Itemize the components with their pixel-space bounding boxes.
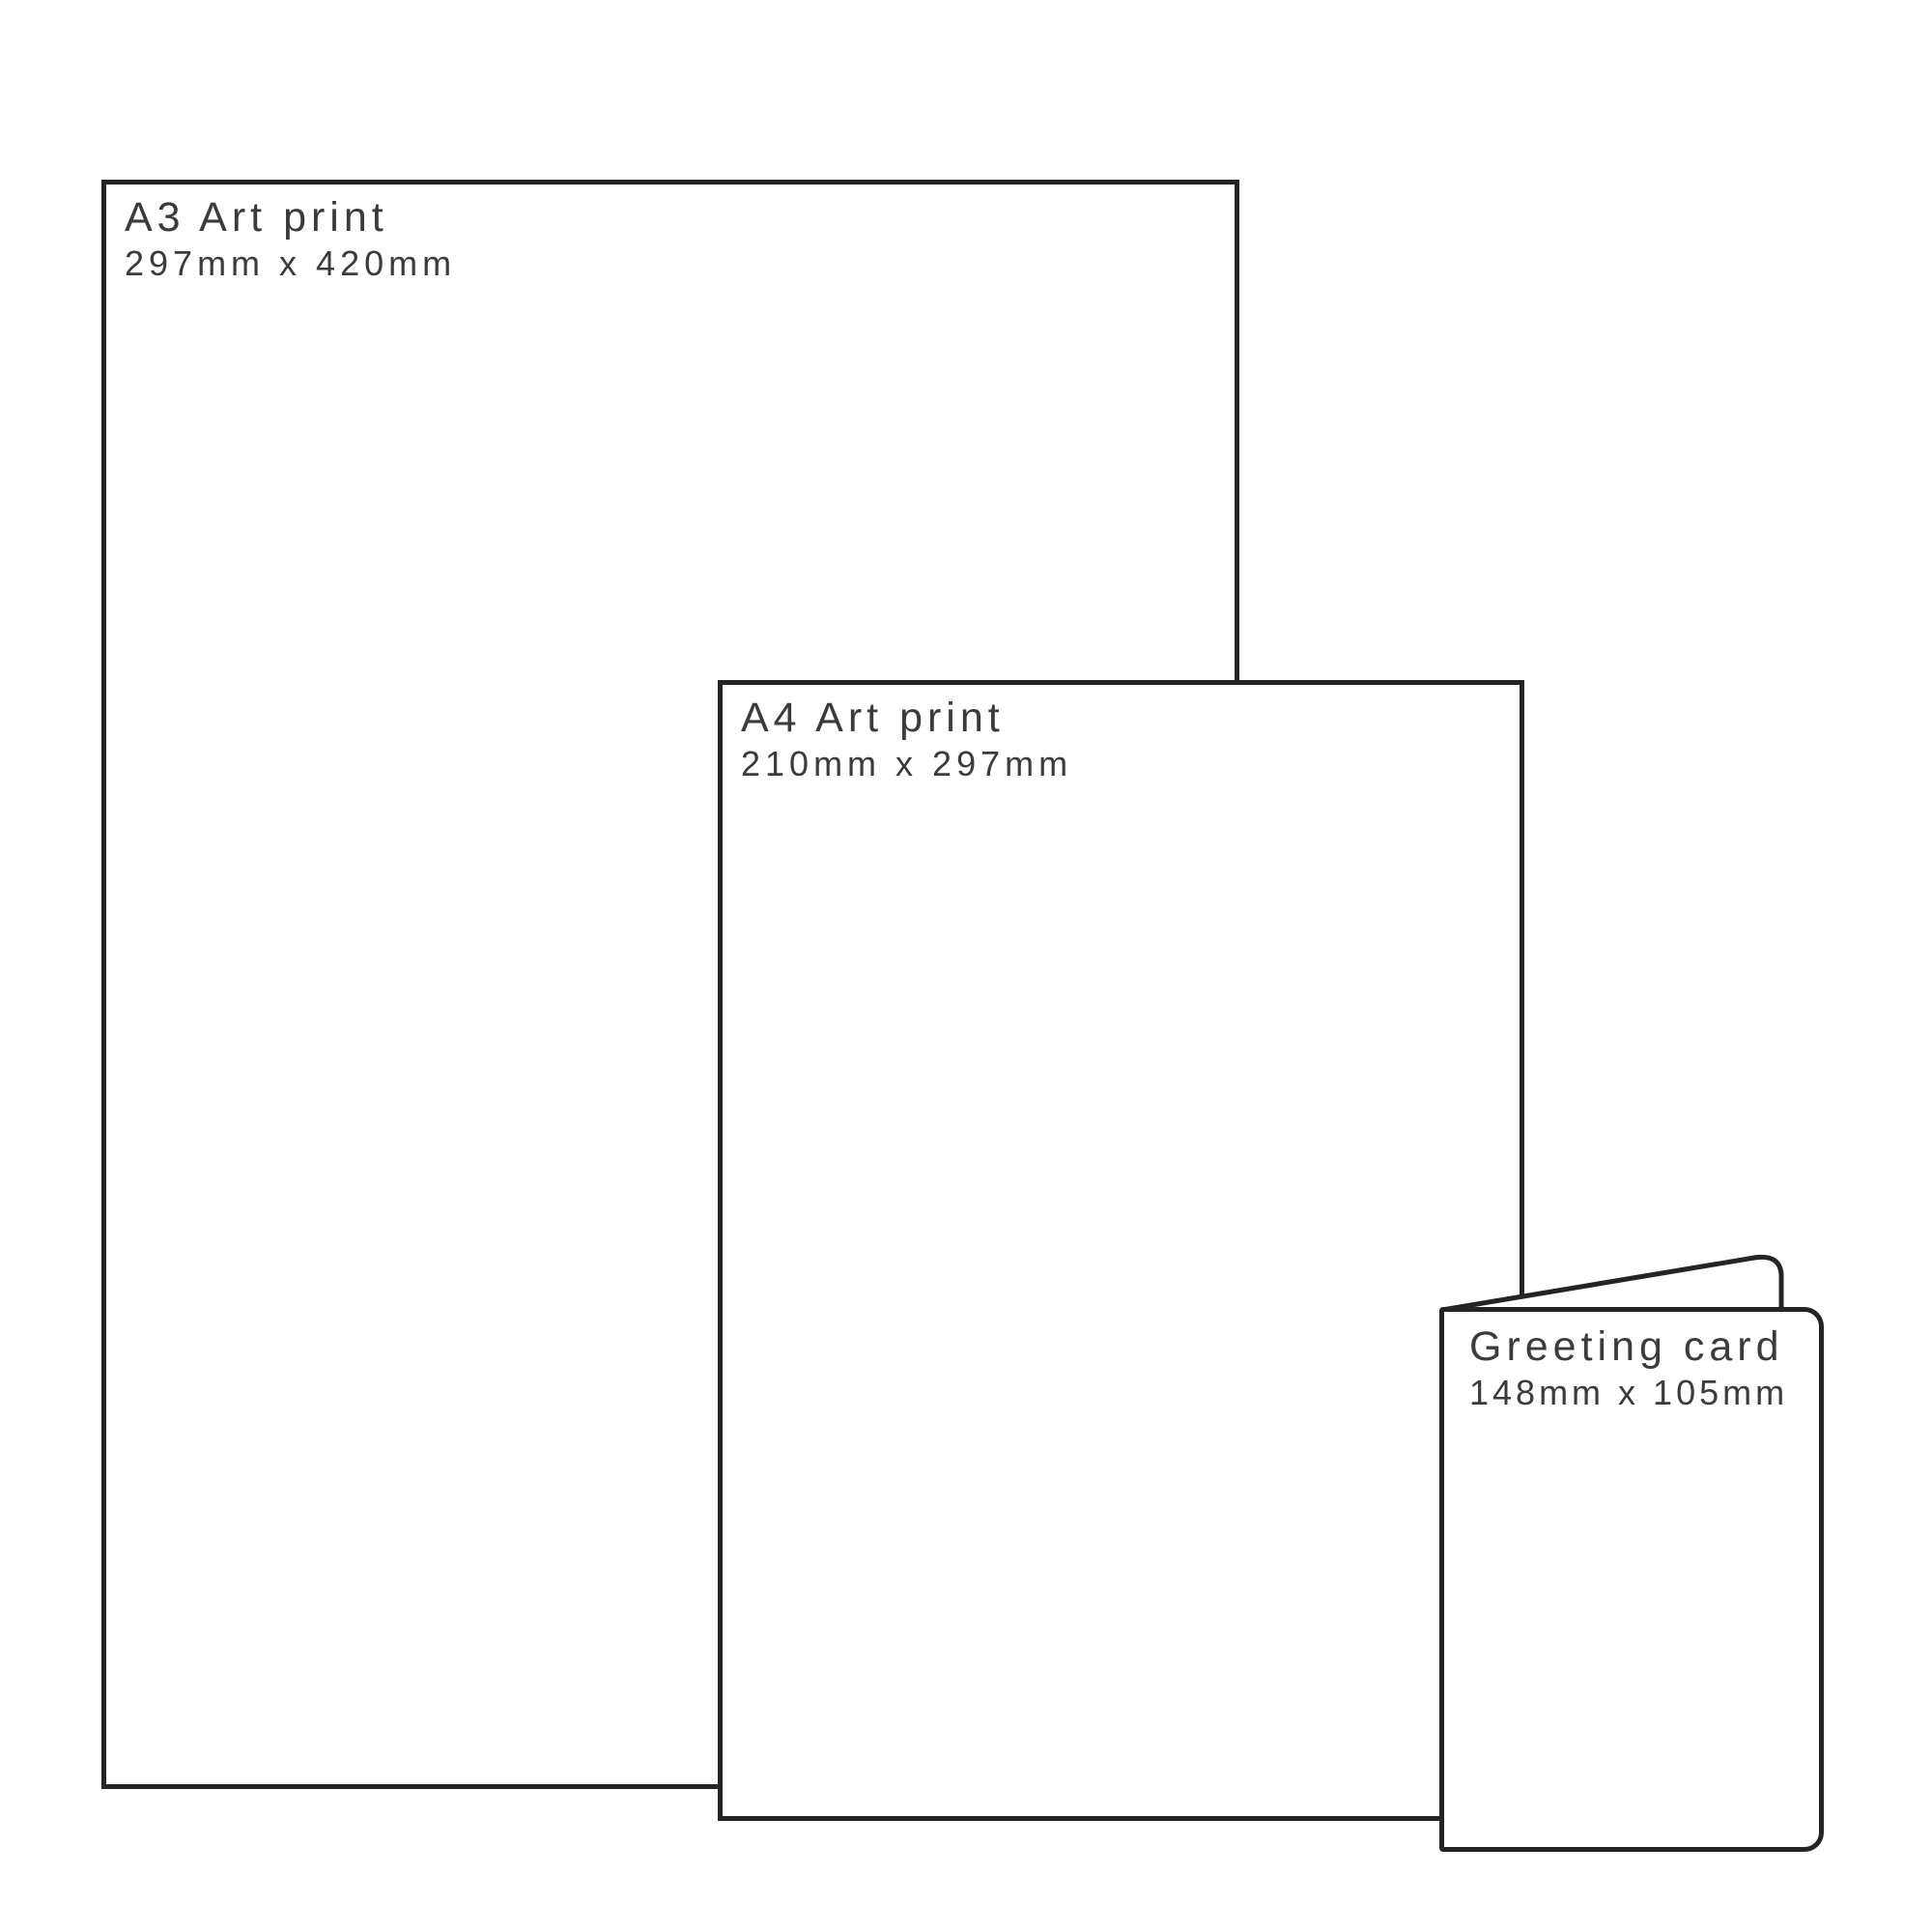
a4-print-outline: A4 Art print 210mm x 297mm — [718, 680, 1524, 1821]
print-size-comparison-diagram: A3 Art print 297mm x 420mm A4 Art print … — [0, 0, 1932, 1932]
greeting-card-title: Greeting card — [1469, 1323, 1815, 1371]
a4-title: A4 Art print — [741, 695, 1514, 742]
greeting-card-label: Greeting card 148mm x 105mm — [1444, 1312, 1819, 1413]
greeting-card-dimensions: 148mm x 105mm — [1469, 1373, 1815, 1412]
a3-dimensions: 297mm x 420mm — [125, 243, 1229, 283]
a4-label: A4 Art print 210mm x 297mm — [723, 685, 1520, 784]
a4-dimensions: 210mm x 297mm — [741, 744, 1514, 783]
a3-title: A3 Art print — [125, 194, 1229, 241]
a3-label: A3 Art print 297mm x 420mm — [106, 185, 1235, 284]
greeting-card-front: Greeting card 148mm x 105mm — [1439, 1307, 1824, 1852]
